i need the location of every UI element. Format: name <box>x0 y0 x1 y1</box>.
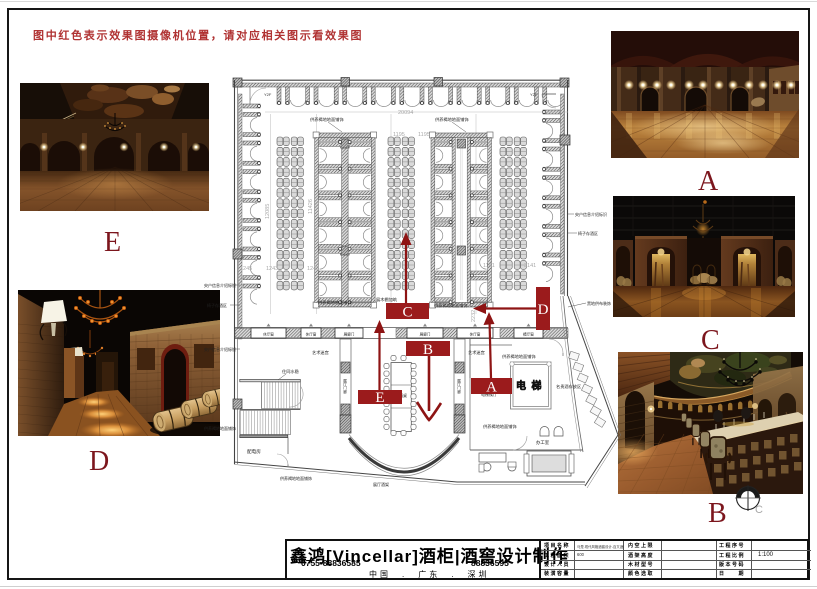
svg-text:供养褐地地面铺饰: 供养褐地地面铺饰 <box>310 116 344 123</box>
svg-text:11426: 11426 <box>308 199 314 214</box>
svg-text:B: B <box>423 342 433 358</box>
svg-text:央户信息介绍标识: 央户信息介绍标识 <box>575 211 607 217</box>
svg-text:展廊门: 展廊门 <box>344 332 355 337</box>
svg-text:1243: 1243 <box>307 266 319 272</box>
svg-text:展厅门廊: 展厅门廊 <box>456 378 461 394</box>
svg-text:E: E <box>375 390 384 406</box>
svg-text:艺术迷宫: 艺术迷宫 <box>312 349 329 356</box>
svg-text:休厅窗: 休厅窗 <box>263 332 274 337</box>
svg-text:3141: 3141 <box>524 263 536 269</box>
svg-text:供养褐地地面铺饰: 供养褐地地面铺饰 <box>204 425 236 431</box>
svg-text:休厅窗: 休厅窗 <box>470 332 481 337</box>
svg-text:黑地供布装饰: 黑地供布装饰 <box>587 300 611 306</box>
svg-text:1195: 1195 <box>393 132 405 138</box>
svg-text:名贵酒存放区: 名贵酒存放区 <box>556 383 581 390</box>
svg-text:模厅窗: 模厅窗 <box>523 332 534 337</box>
svg-text:Y2F: Y2F <box>530 92 538 97</box>
svg-text:供养褐地地面铺饰: 供养褐地地面铺饰 <box>434 302 468 309</box>
svg-text:供养褐地地面铺饰: 供养褐地地面铺饰 <box>280 475 312 481</box>
svg-text:C: C <box>755 504 763 516</box>
svg-text:C: C <box>402 305 412 321</box>
svg-text:Y2F: Y2F <box>264 92 272 97</box>
svg-text:12085: 12085 <box>265 204 271 219</box>
svg-text:展木棚加筑: 展木棚加筑 <box>376 296 398 303</box>
svg-text:1195: 1195 <box>418 132 430 138</box>
svg-text:2232: 2232 <box>471 310 477 322</box>
svg-text:办工室: 办工室 <box>536 439 550 446</box>
svg-text:D: D <box>538 302 549 318</box>
svg-text:休厅窗: 休厅窗 <box>306 332 317 337</box>
svg-text:住同水稳: 住同水稳 <box>282 368 300 375</box>
svg-text:供养褐地地面铺饰: 供养褐地地面铺饰 <box>502 353 536 360</box>
svg-text:供养褐地地面铺饰: 供养褐地地面铺饰 <box>435 116 469 123</box>
svg-text:1141: 1141 <box>483 263 495 269</box>
svg-text:1243: 1243 <box>266 266 278 272</box>
svg-text:展厅门廊: 展厅门廊 <box>342 378 347 394</box>
svg-text:展廊门: 展廊门 <box>420 332 431 337</box>
svg-text:椅子存酒区: 椅子存酒区 <box>207 302 227 308</box>
svg-text:1245: 1245 <box>240 266 252 272</box>
svg-text:展厅酒架: 展厅酒架 <box>373 481 389 487</box>
svg-text:椅子存酒区: 椅子存酒区 <box>578 230 598 236</box>
svg-text:艺术迷宫: 艺术迷宫 <box>468 349 485 356</box>
svg-text:供养褐地地面铺饰: 供养褐地地面铺饰 <box>318 299 352 306</box>
svg-text:电梯: 电梯 <box>516 379 547 392</box>
svg-text:供养褐地地面铺饰: 供养褐地地面铺饰 <box>483 423 517 430</box>
svg-text:20094: 20094 <box>398 110 413 116</box>
svg-text:配电房: 配电房 <box>247 448 261 455</box>
svg-text:A: A <box>486 380 497 396</box>
